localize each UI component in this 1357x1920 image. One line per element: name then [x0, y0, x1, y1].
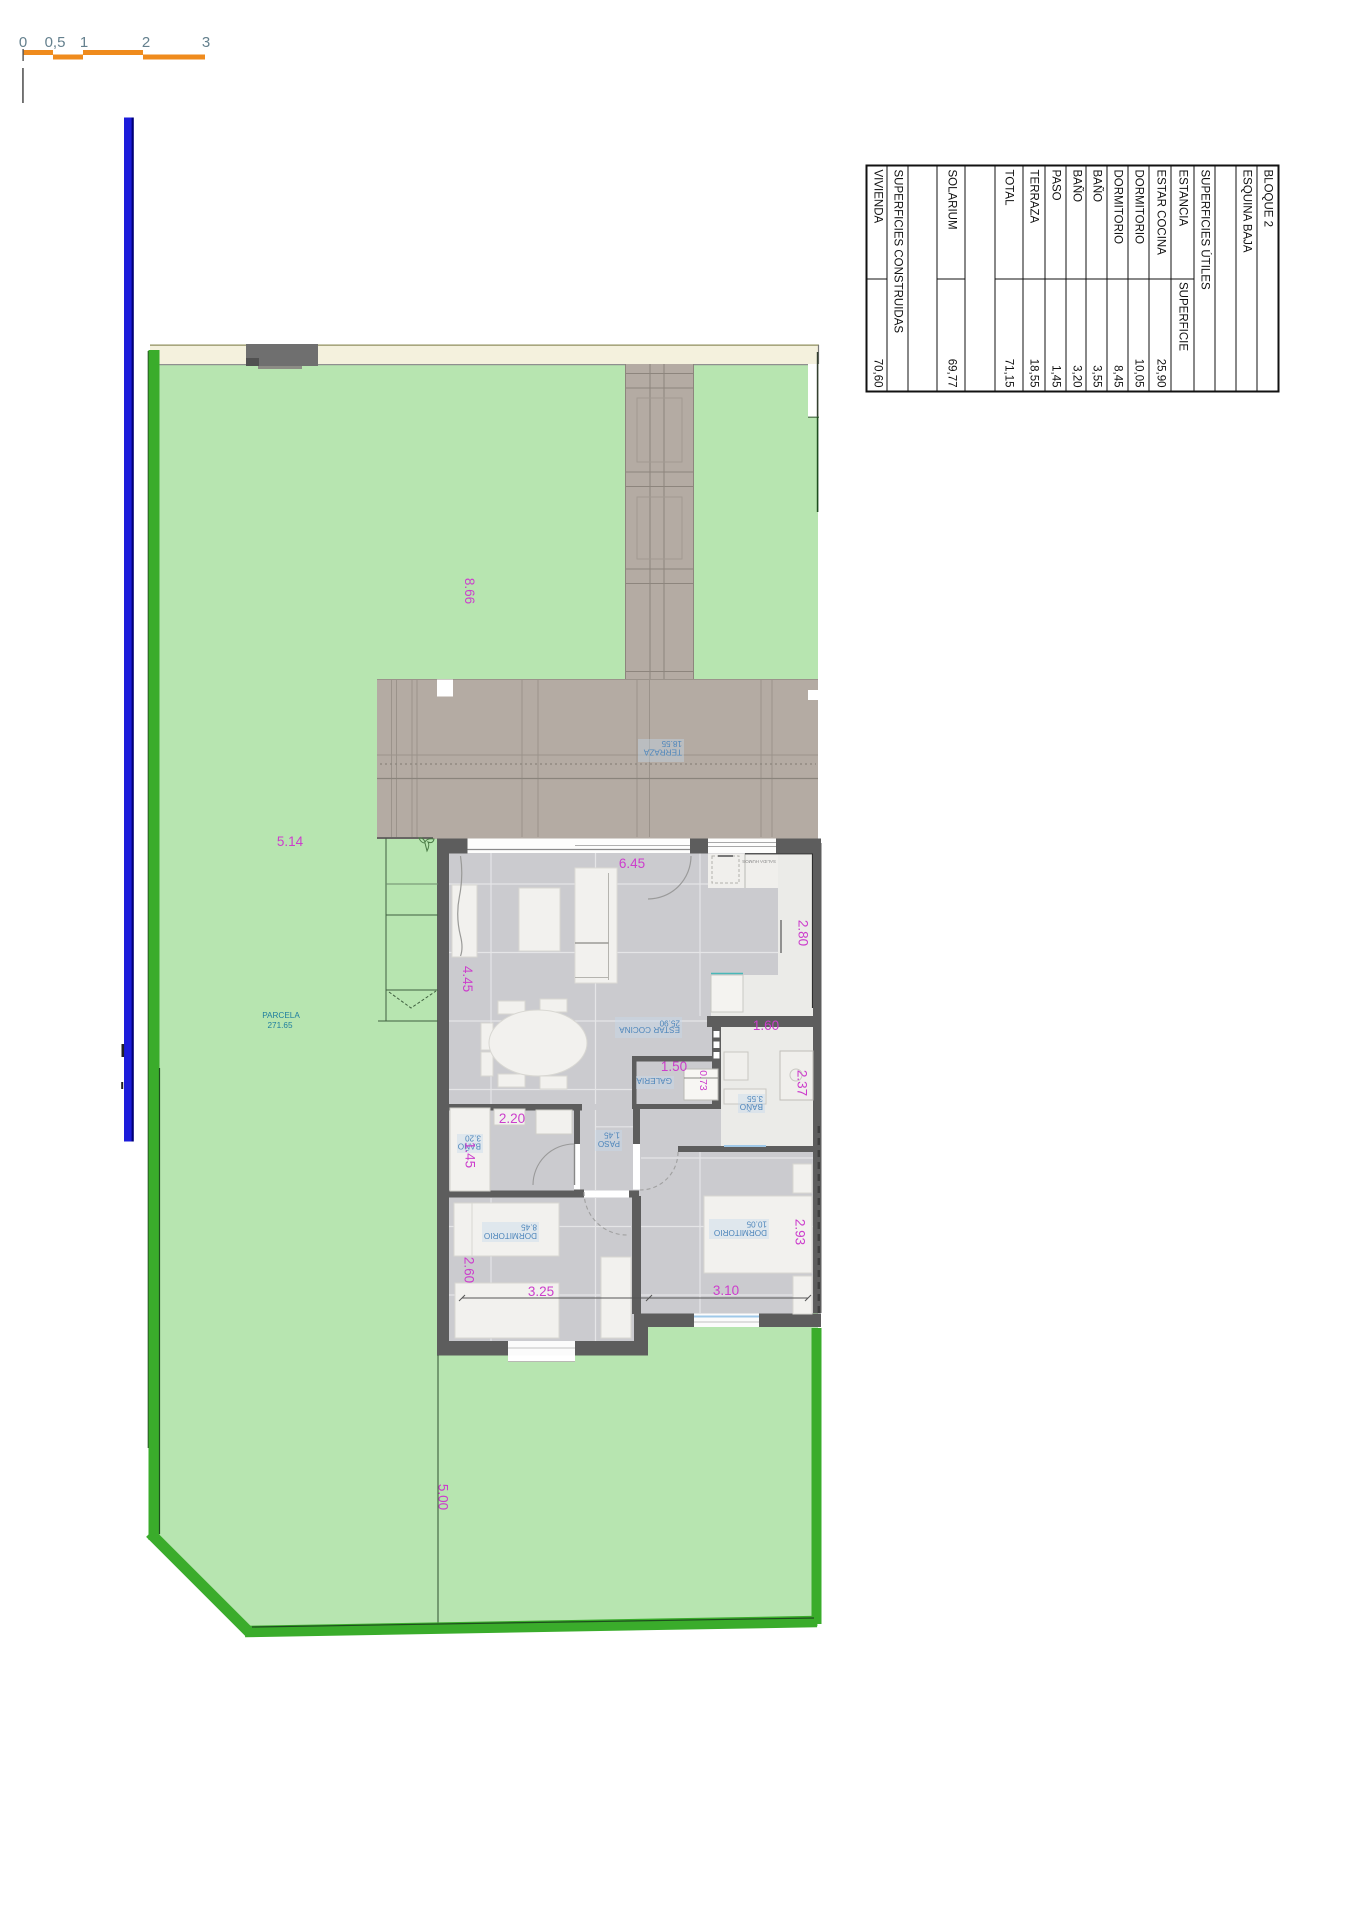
svg-text:PARCELA: PARCELA — [262, 1011, 300, 1020]
svg-text:5.00: 5.00 — [436, 1484, 451, 1510]
svg-text:4.45: 4.45 — [460, 966, 475, 992]
svg-text:PASO: PASO — [598, 1139, 620, 1148]
svg-text:2.93: 2.93 — [793, 1219, 808, 1245]
svg-text:271.65: 271.65 — [267, 1021, 292, 1030]
svg-text:2.80: 2.80 — [796, 920, 811, 946]
svg-text:BAÑO: BAÑO — [740, 1102, 763, 1112]
svg-text:GALERIA: GALERIA — [636, 1076, 672, 1085]
svg-text:2.20: 2.20 — [499, 1111, 525, 1126]
svg-text:8.45: 8.45 — [521, 1223, 537, 1232]
svg-text:6.45: 6.45 — [619, 856, 645, 871]
svg-text:0.73: 0.73 — [697, 1070, 709, 1091]
svg-text:2.37: 2.37 — [795, 1070, 810, 1096]
svg-text:1.50: 1.50 — [661, 1059, 687, 1074]
svg-text:5.14: 5.14 — [277, 834, 304, 849]
svg-text:2: 2 — [142, 34, 150, 51]
svg-text:0: 0 — [19, 34, 27, 51]
svg-text:ESTAR COCINA: ESTAR COCINA — [619, 1025, 680, 1034]
svg-text:3.25: 3.25 — [528, 1284, 554, 1299]
svg-text:1.60: 1.60 — [753, 1018, 779, 1033]
svg-text:1.45: 1.45 — [604, 1131, 620, 1140]
svg-text:DORMITORIO: DORMITORIO — [484, 1231, 537, 1240]
svg-text:18.55: 18.55 — [661, 739, 682, 748]
svg-text:2.60: 2.60 — [462, 1257, 477, 1283]
svg-text:3: 3 — [202, 34, 210, 51]
svg-text:1: 1 — [80, 34, 88, 51]
svg-text:SALIDA HUMOS: SALIDA HUMOS — [742, 859, 776, 864]
svg-text:DORMITORIO: DORMITORIO — [714, 1228, 767, 1237]
svg-text:8.66: 8.66 — [462, 578, 477, 604]
svg-text:0,5: 0,5 — [45, 34, 66, 51]
svg-text:3.10: 3.10 — [713, 1283, 739, 1298]
svg-text:3.55: 3.55 — [747, 1094, 763, 1103]
svg-text:10.05: 10.05 — [746, 1220, 767, 1229]
svg-text:1.45: 1.45 — [463, 1142, 478, 1168]
svg-text:TERRAZA: TERRAZA — [643, 748, 682, 757]
